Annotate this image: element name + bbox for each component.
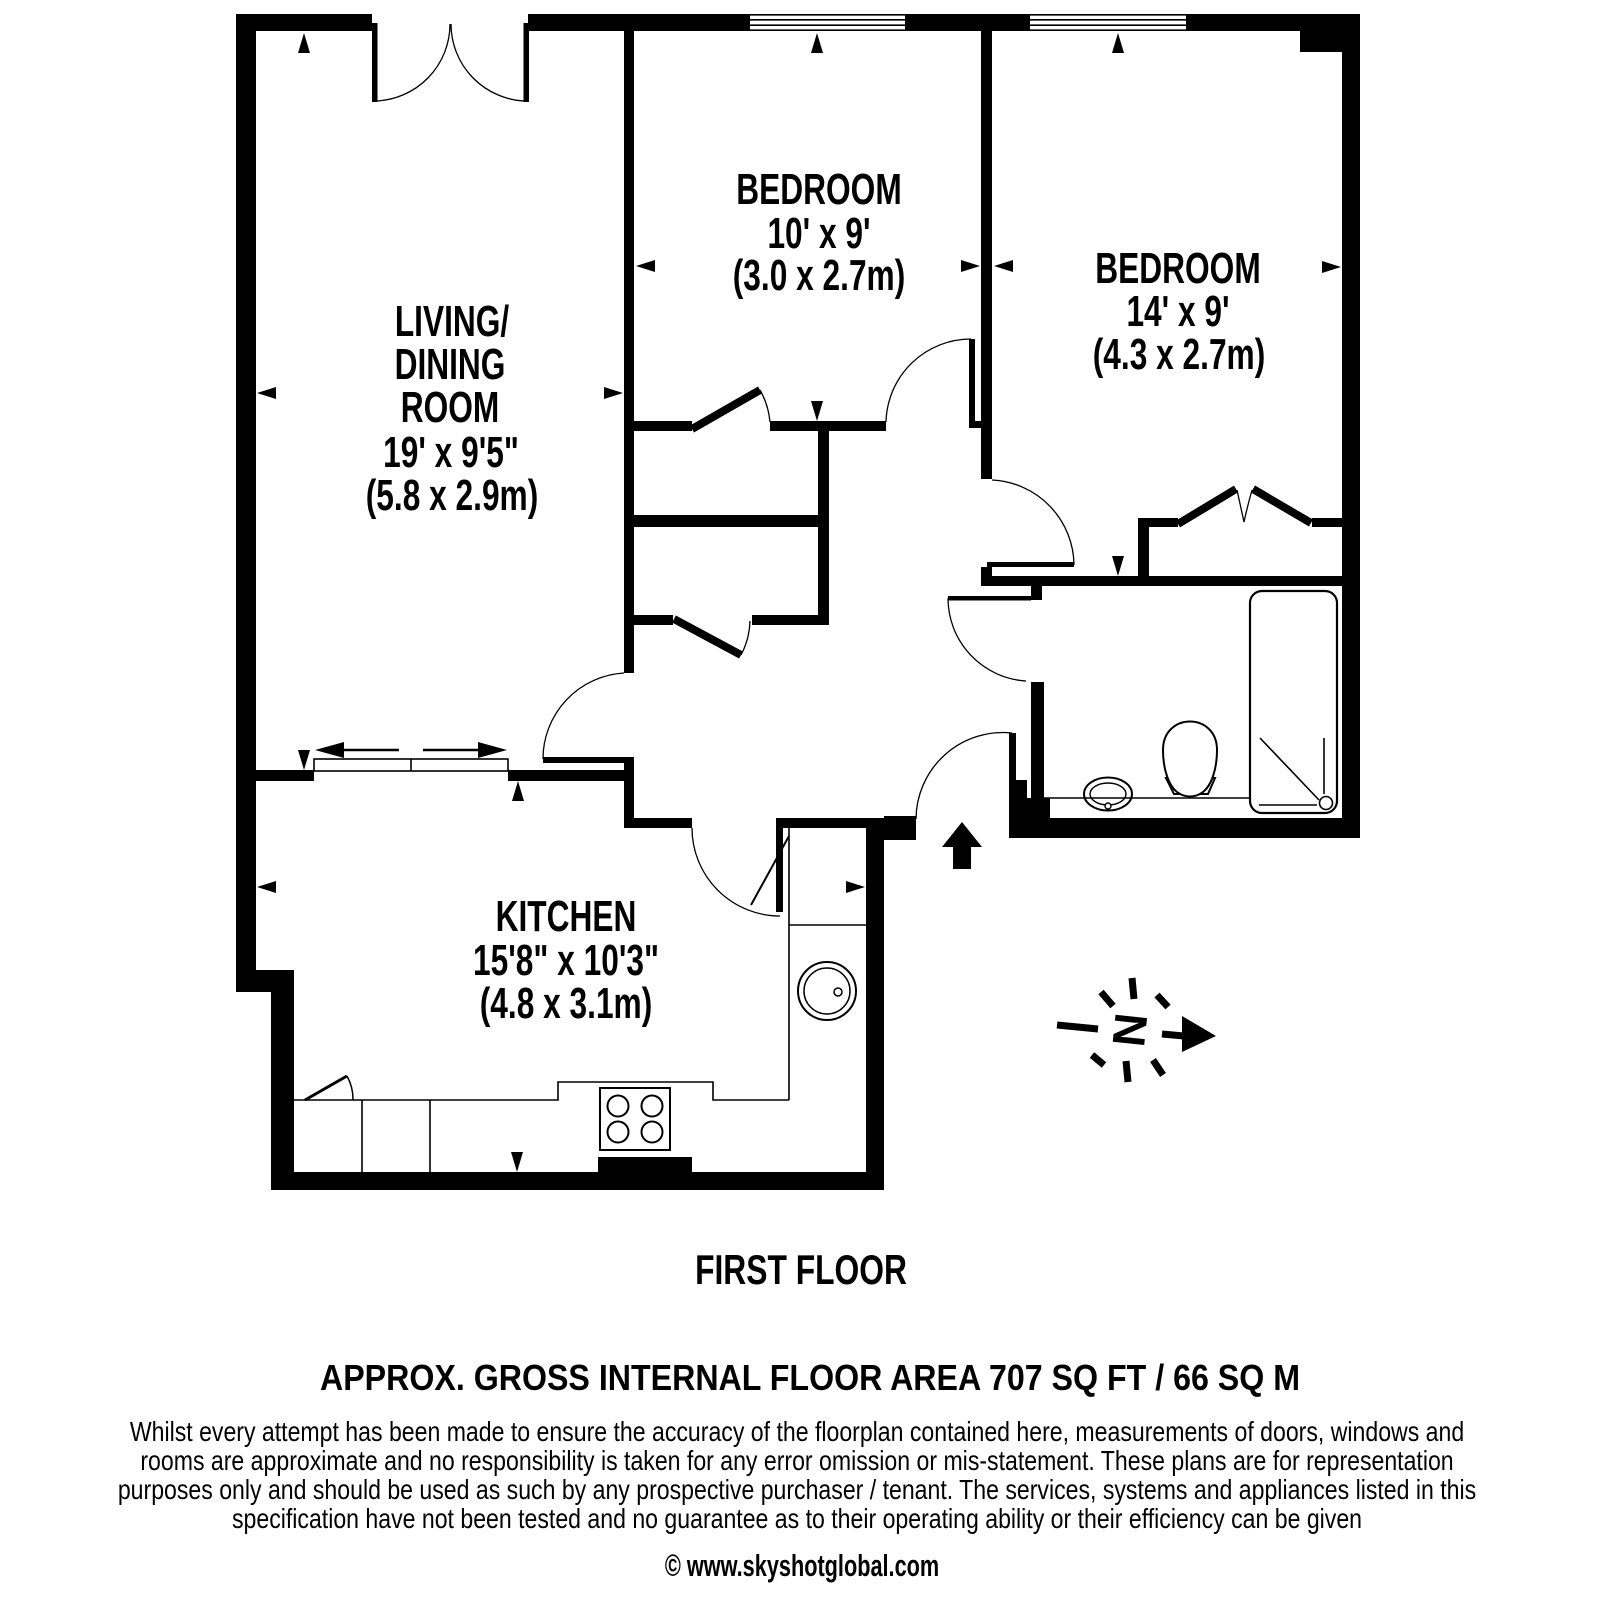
svg-text:(3.0 x 2.7m): (3.0 x 2.7m)	[733, 251, 906, 300]
svg-text:ROOM: ROOM	[401, 383, 500, 432]
svg-text:Whilst every attempt has been: Whilst every attempt has been made to en…	[130, 1417, 1464, 1448]
svg-text:N: N	[1102, 1011, 1157, 1049]
svg-text:FIRST FLOOR: FIRST FLOOR	[695, 1246, 907, 1293]
svg-text:(4.8 x 3.1m): (4.8 x 3.1m)	[480, 979, 653, 1028]
svg-text:(5.8 x 2.9m): (5.8 x 2.9m)	[366, 471, 539, 520]
svg-text:specification have not been te: specification have not been tested and n…	[232, 1504, 1362, 1535]
svg-text:KITCHEN: KITCHEN	[496, 892, 637, 941]
svg-text:BEDROOM: BEDROOM	[1095, 244, 1260, 293]
svg-text:(4.3 x 2.7m): (4.3 x 2.7m)	[1093, 330, 1266, 379]
svg-text:19' x 9'5": 19' x 9'5"	[383, 428, 519, 477]
svg-text:LIVING/: LIVING/	[395, 297, 510, 346]
svg-text:APPROX. GROSS INTERNAL FLOOR A: APPROX. GROSS INTERNAL FLOOR AREA 707 SQ…	[320, 1358, 1300, 1398]
svg-text:rooms are approximate and no r: rooms are approximate and no responsibil…	[140, 1446, 1453, 1477]
svg-text:14' x 9': 14' x 9'	[1126, 287, 1229, 336]
svg-text:© www.skyshotglobal.com: © www.skyshotglobal.com	[665, 1548, 939, 1583]
svg-text:DINING: DINING	[395, 340, 506, 389]
svg-text:BEDROOM: BEDROOM	[736, 165, 901, 214]
svg-text:purposes only and should be u: purposes only and should be used as such…	[118, 1475, 1476, 1506]
svg-text:15'8" x 10'3": 15'8" x 10'3"	[473, 936, 659, 985]
